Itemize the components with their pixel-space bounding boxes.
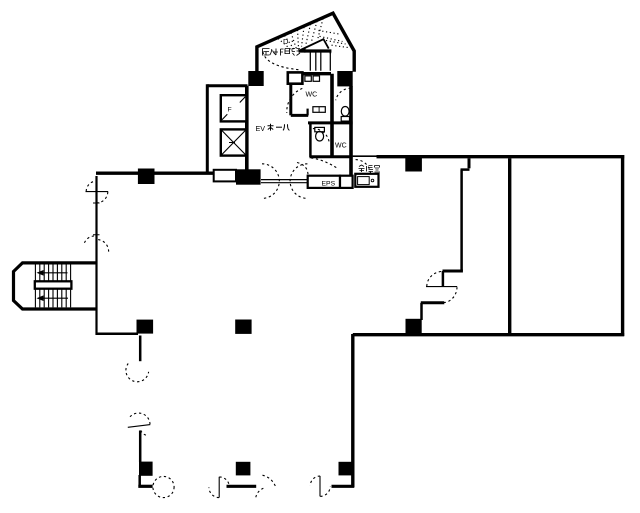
- svg-text:EV: EV: [256, 124, 266, 133]
- svg-text:WC: WC: [335, 143, 347, 150]
- svg-text:F: F: [228, 107, 232, 114]
- svg-text:EPS: EPS: [322, 180, 336, 187]
- svg-text:WC: WC: [306, 92, 318, 99]
- svg-text:D: D: [283, 37, 289, 46]
